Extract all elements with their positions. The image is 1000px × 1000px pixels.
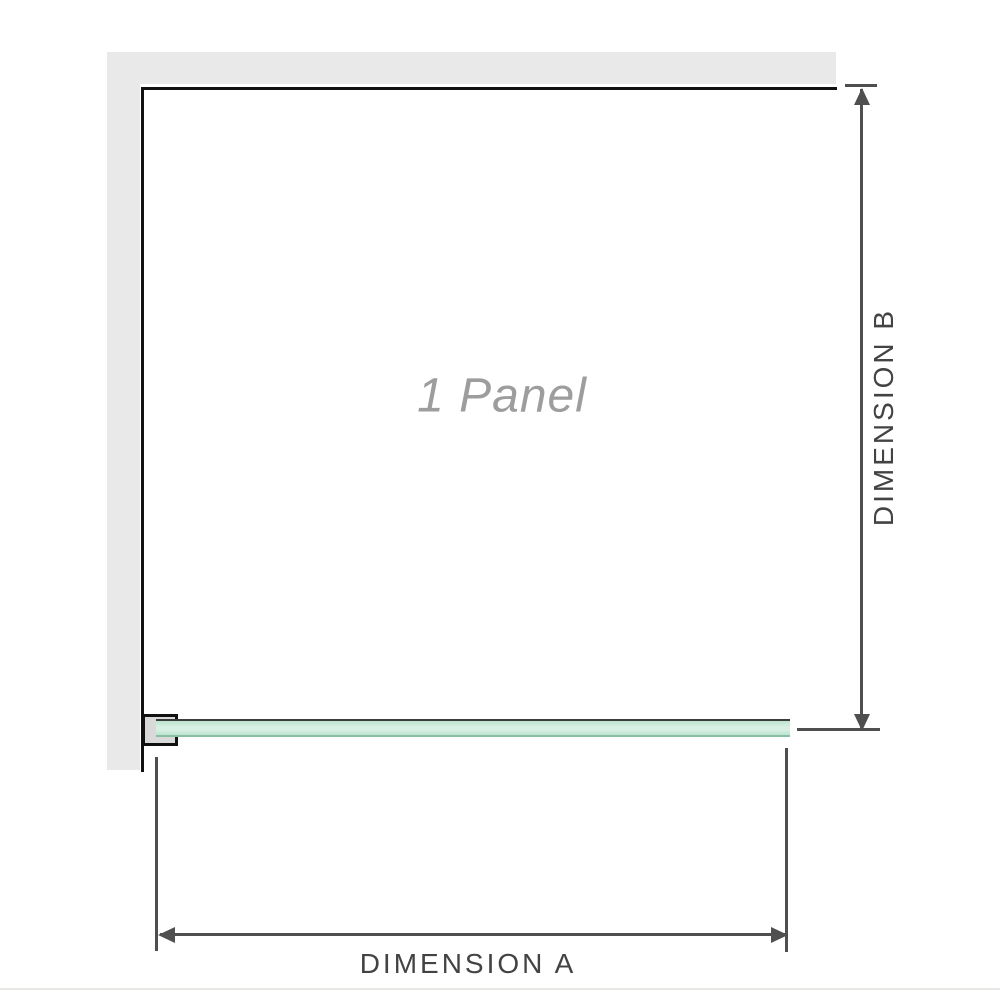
- arrowhead-up-icon: [854, 88, 870, 105]
- dimension-b-top-tick: [845, 84, 877, 87]
- shower-panel-dimension-diagram: 1 Panel DIMENSION B DIMENSION A: [0, 0, 1000, 1000]
- bottom-divider: [0, 988, 1000, 990]
- wall-top-segment: [107, 52, 836, 84]
- dimension-b-bottom-tick: [797, 728, 880, 731]
- dimension-b-label: DIMENSION B: [868, 308, 900, 526]
- wall-left-segment: [107, 52, 140, 770]
- dimension-a-label: DIMENSION A: [360, 948, 577, 980]
- enclosure-top-border: [143, 87, 837, 90]
- arrowhead-right-icon: [771, 927, 788, 943]
- dimension-b-line: [860, 89, 863, 731]
- dimension-a-right-extension-line: [785, 748, 788, 952]
- panel-count-label: 1 Panel: [417, 369, 587, 424]
- glass-panel: [156, 719, 790, 737]
- enclosure-left-border: [141, 87, 144, 772]
- dimension-a-left-extension-line: [155, 757, 158, 951]
- dimension-a-line: [160, 933, 786, 936]
- arrowhead-left-icon: [158, 927, 175, 943]
